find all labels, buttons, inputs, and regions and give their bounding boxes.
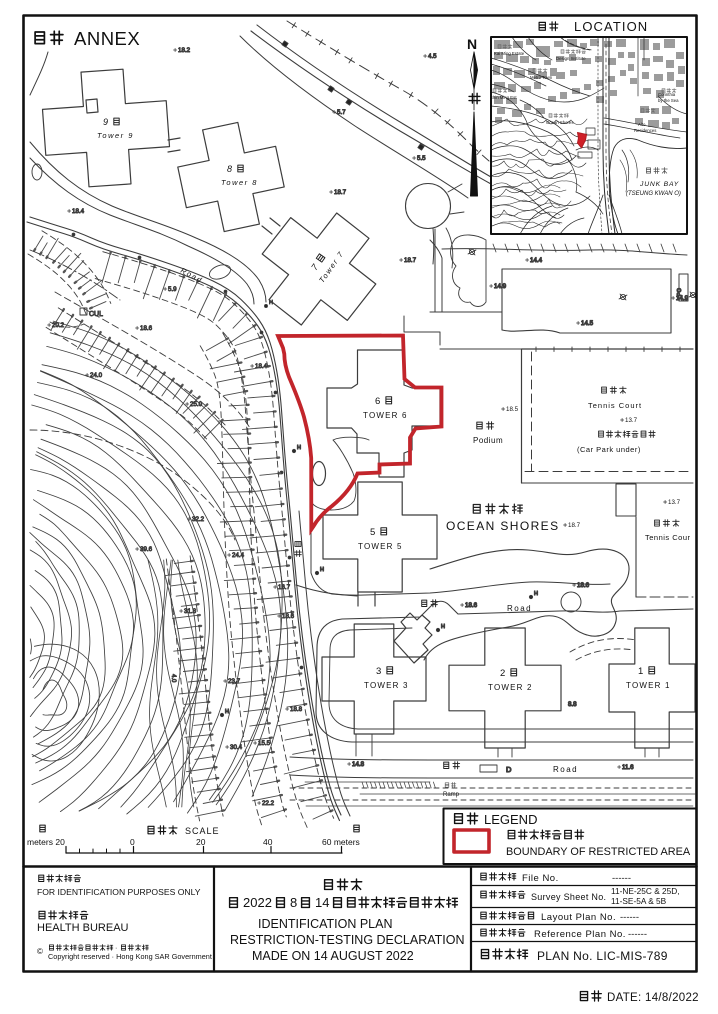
svg-text:Alto: Alto [638,122,646,127]
svg-text:13.7: 13.7 [625,417,638,424]
svg-text:TOWER 2: TOWER 2 [488,683,533,692]
svg-text:14.8: 14.8 [352,761,365,768]
svg-text:Shin Ming Est: Shin Ming Est [490,95,517,100]
svg-text:FOR IDENTIFICATION PURPOSES ON: FOR IDENTIFICATION PURPOSES ONLY [37,887,201,897]
svg-text:24.0: 24.0 [90,372,103,379]
svg-text:14.5: 14.5 [581,320,594,327]
svg-text:24.4: 24.4 [232,552,245,559]
svg-text:TOWER 6: TOWER 6 [363,411,408,420]
svg-text:0: 0 [130,837,135,847]
svg-text:20: 20 [196,837,206,847]
svg-text:13.7: 13.7 [668,499,681,506]
svg-text:Tower 8: Tower 8 [221,178,258,187]
svg-text:23.7: 23.7 [228,678,241,685]
svg-text:D: D [506,765,512,774]
svg-text:Residences: Residences [634,128,656,133]
svg-text:30.4: 30.4 [230,744,243,751]
svg-text:18.4: 18.4 [255,363,268,370]
svg-text:Ramp: Ramp [443,792,460,798]
svg-text:5: 5 [370,527,376,538]
svg-text:H: H [534,591,538,597]
svg-text:8.8: 8.8 [568,701,577,708]
svg-text:5.9: 5.9 [168,286,177,293]
svg-text:Copyright reserved · Hong Kong: Copyright reserved · Hong Kong SAR Gover… [48,952,212,961]
svg-text:H: H [441,624,445,630]
svg-text:5.5: 5.5 [417,155,426,162]
svg-text:9: 9 [103,117,108,127]
svg-text:Road: Road [553,765,578,774]
svg-text:22.2: 22.2 [262,800,275,807]
svg-text:SCALE: SCALE [185,826,220,836]
svg-text:(TSEUNG KWAN O): (TSEUNG KWAN O) [626,191,681,197]
svg-text:14.9: 14.9 [494,283,507,290]
svg-text:4.5: 4.5 [428,53,437,60]
svg-text:2022: 2022 [243,895,272,910]
svg-text:RESTRICTION-TESTING DECLARATIO: RESTRICTION-TESTING DECLARATION [230,933,465,947]
svg-text:LOCATION: LOCATION [574,19,648,34]
svg-text:4.0: 4.0 [170,674,176,683]
svg-text:18.7: 18.7 [568,522,581,529]
svg-text:by the Sea: by the Sea [658,98,679,103]
svg-text:39.6: 39.6 [140,546,153,553]
svg-text:TOWER 3: TOWER 3 [364,681,409,690]
svg-text:Corinthia: Corinthia [658,92,676,97]
svg-text:LEGEND: LEGEND [484,812,537,827]
svg-text:18.6: 18.6 [465,602,478,609]
svg-text:18.6: 18.6 [140,325,153,332]
svg-text:18.2: 18.2 [178,47,191,54]
svg-text:PLAN No. LIC-MIS-789: PLAN No. LIC-MIS-789 [537,949,668,963]
svg-text:OCEAN SHORES: OCEAN SHORES [446,519,560,533]
svg-text:TOWER 5: TOWER 5 [358,542,403,551]
svg-text:DATE: 14/8/2022: DATE: 14/8/2022 [607,992,699,1004]
svg-text:JUNK BAY: JUNK BAY [639,181,679,188]
svg-text:TOWER 1: TOWER 1 [626,681,671,690]
svg-text:MADE ON 14 AUGUST 2022: MADE ON 14 AUGUST 2022 [252,949,414,963]
svg-text:meters 20: meters 20 [27,837,65,847]
svg-text:18.6: 18.6 [282,613,295,620]
svg-text:------: ------ [620,912,639,923]
svg-text:20.2: 20.2 [52,322,65,329]
svg-text:Metro Town: Metro Town [530,75,553,80]
svg-text:1: 1 [638,666,644,677]
svg-text:IDENTIFICATION PLAN: IDENTIFICATION PLAN [258,917,393,931]
svg-text:18.5: 18.5 [506,406,519,413]
svg-text:15.5: 15.5 [258,740,271,747]
svg-text:------: ------ [612,873,631,884]
svg-text:Tennis Cour: Tennis Cour [645,533,691,542]
svg-text:3: 3 [376,666,382,677]
svg-text:16.7: 16.7 [278,584,291,591]
svg-text:Survey Sheet No.: Survey Sheet No. [531,892,606,902]
svg-text:11.6: 11.6 [622,764,634,771]
svg-text:60 meters: 60 meters [322,837,360,847]
svg-text:Tennis Court: Tennis Court [588,401,642,410]
svg-text:(Car Park under): (Car Park under) [577,445,641,454]
svg-text:11-SE-5A & 5B: 11-SE-5A & 5B [611,896,667,906]
svg-text:8: 8 [290,895,297,910]
svg-text:18.4: 18.4 [72,208,85,215]
svg-text:14.9: 14.9 [676,295,689,302]
svg-text:------: ------ [628,929,647,940]
svg-text:18.7: 18.7 [404,257,417,264]
svg-text:H: H [297,445,301,451]
svg-text:N: N [467,36,477,52]
svg-text:Road: Road [507,604,532,613]
svg-text:31.3: 31.3 [184,608,197,615]
svg-text:Kai Ming Estate: Kai Ming Estate [494,51,525,56]
svg-text:14: 14 [315,895,329,910]
svg-text:File No.: File No. [522,873,559,884]
svg-text:HEALTH BUREAU: HEALTH BUREAU [37,922,129,934]
svg-text:5.7: 5.7 [337,109,346,116]
svg-text:Tower 9: Tower 9 [97,131,134,140]
svg-text:Layout Plan No.: Layout Plan No. [541,912,616,923]
svg-text:40: 40 [263,837,273,847]
svg-text:18.8: 18.8 [290,706,303,713]
svg-text:CUL: CUL [89,311,103,318]
svg-text:14.4: 14.4 [530,257,543,264]
svg-text:Podium: Podium [473,436,503,445]
svg-text:2: 2 [500,668,506,679]
svg-text:·: · [115,945,117,952]
svg-text:32.2: 32.2 [192,516,205,523]
svg-text:Ocean Shores: Ocean Shores [546,120,573,125]
svg-text:18.6: 18.6 [577,582,590,589]
svg-text:18.7: 18.7 [334,189,347,196]
svg-text:H: H [320,567,324,573]
svg-text:ANNEX: ANNEX [74,28,140,49]
svg-text:BOUNDARY OF RESTRICTED AREA: BOUNDARY OF RESTRICTED AREA [506,846,691,858]
svg-text:25.0: 25.0 [190,401,203,408]
svg-text:Design Institute: Design Institute [556,56,586,61]
svg-text:6: 6 [375,396,381,407]
svg-text:H: H [225,709,229,715]
svg-text:8: 8 [227,164,232,174]
svg-text:Reference Plan No.: Reference Plan No. [534,929,626,940]
svg-text:11-NE-25C & 25D,: 11-NE-25C & 25D, [611,886,680,896]
svg-text:©: © [37,947,43,956]
